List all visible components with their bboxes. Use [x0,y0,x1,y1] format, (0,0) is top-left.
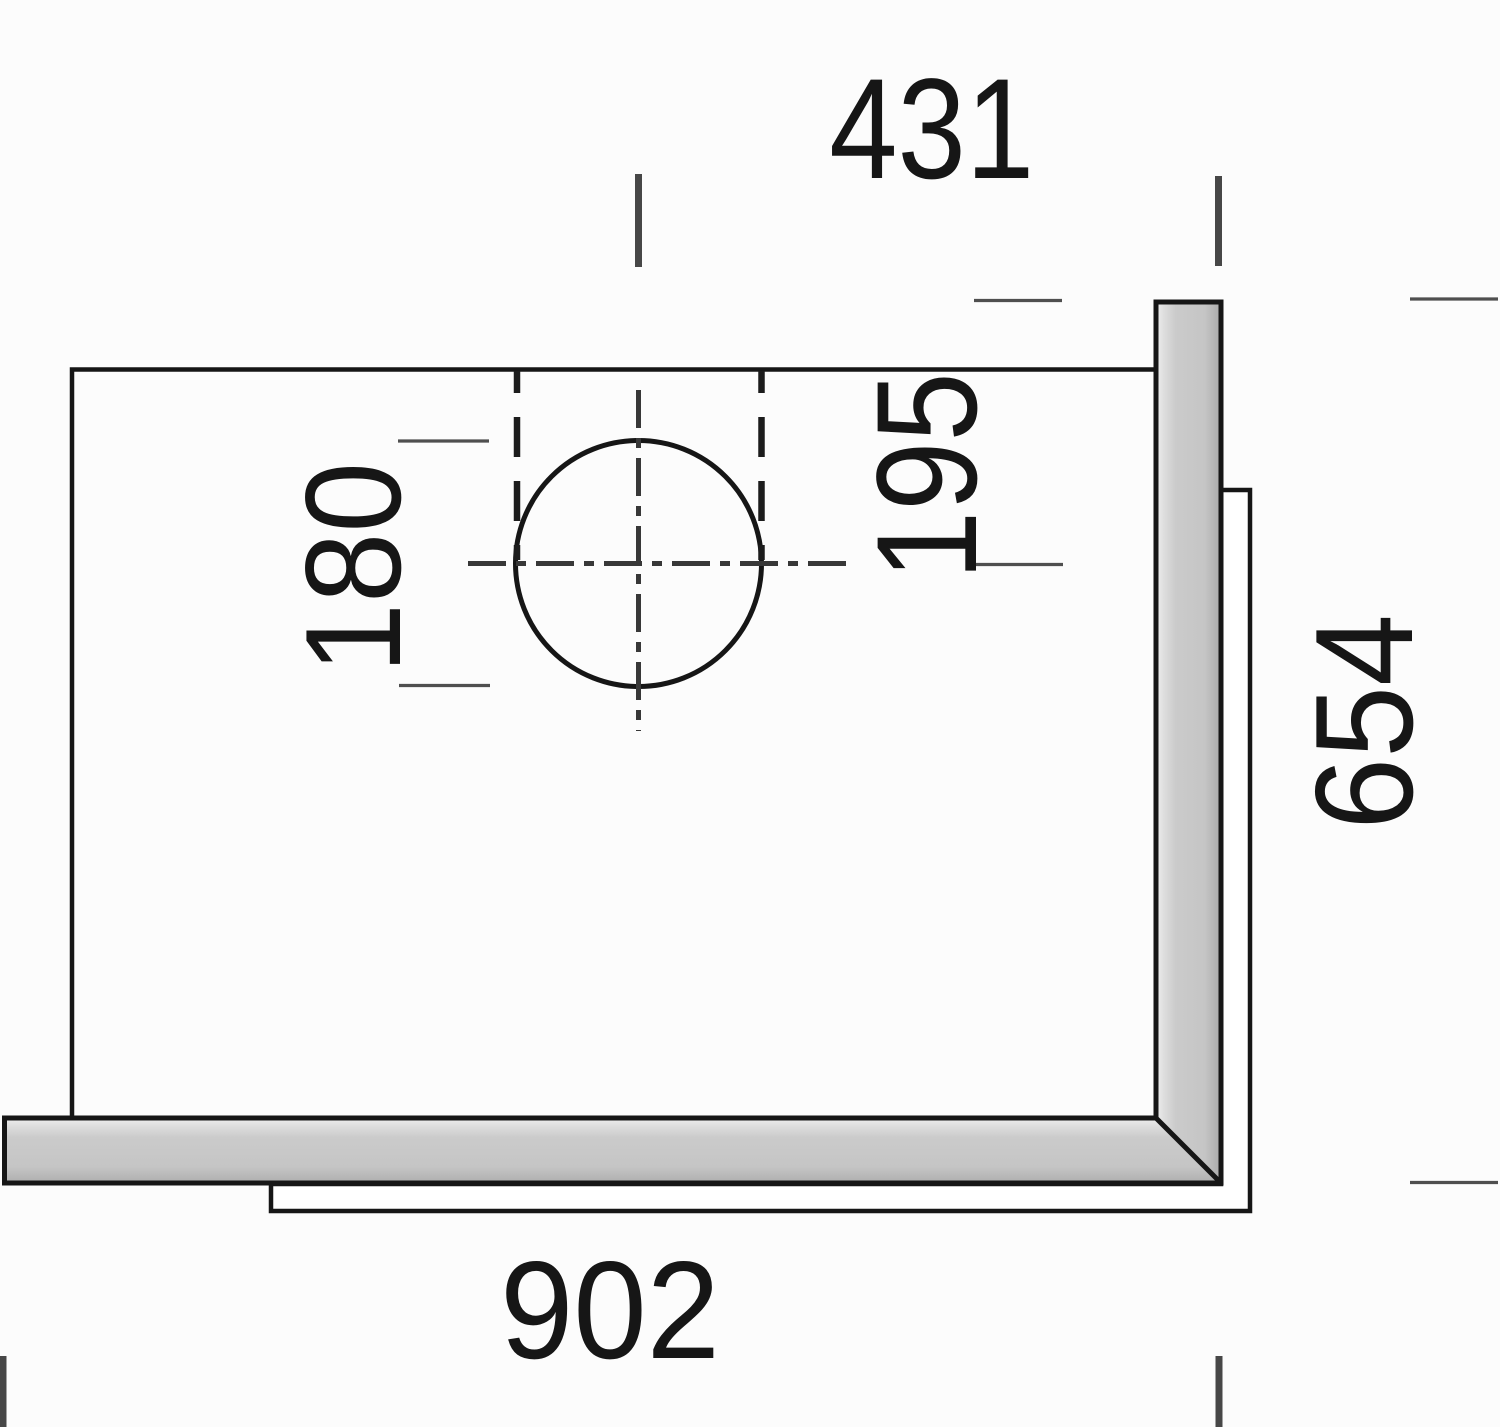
svg-text:195: 195 [848,372,1007,580]
svg-text:431: 431 [829,49,1034,209]
svg-text:902: 902 [500,1232,720,1388]
svg-text:180: 180 [277,462,429,673]
svg-text:654: 654 [1287,614,1442,830]
